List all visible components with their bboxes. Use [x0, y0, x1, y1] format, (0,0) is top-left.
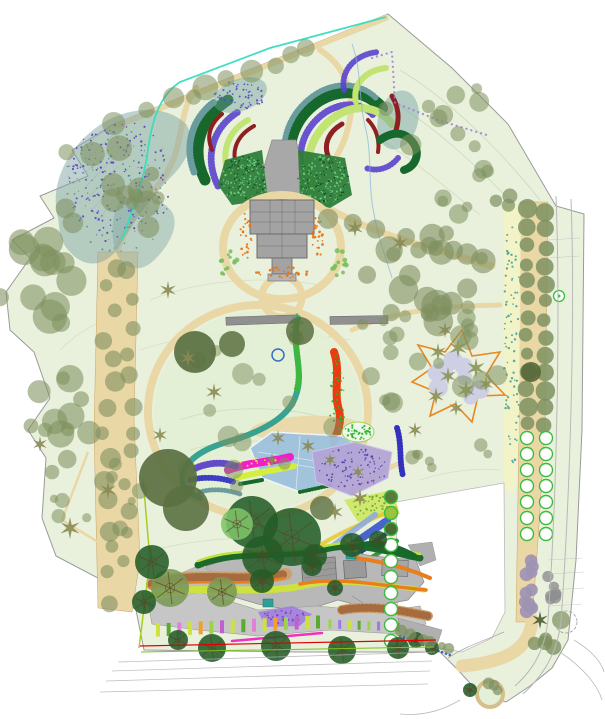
- specimen-dark-1: [174, 331, 216, 373]
- terrace-building-b: [343, 559, 366, 578]
- mansion-stem: [272, 258, 292, 274]
- site-plan-canvas: [0, 0, 605, 719]
- road-arc-sw: [400, 700, 460, 714]
- specimen-dark-5: [286, 317, 314, 345]
- road-arc-se-1: [560, 652, 602, 700]
- specimen-dark-3: [163, 485, 209, 531]
- landscape-plan-viewport: [0, 0, 605, 719]
- specimen-dark-4: [219, 331, 245, 357]
- road-arc-se-2: [574, 640, 604, 672]
- specimen-dark-6: [310, 496, 334, 520]
- teal-pool-b: [263, 599, 273, 607]
- allee-dark-tree: [521, 362, 541, 382]
